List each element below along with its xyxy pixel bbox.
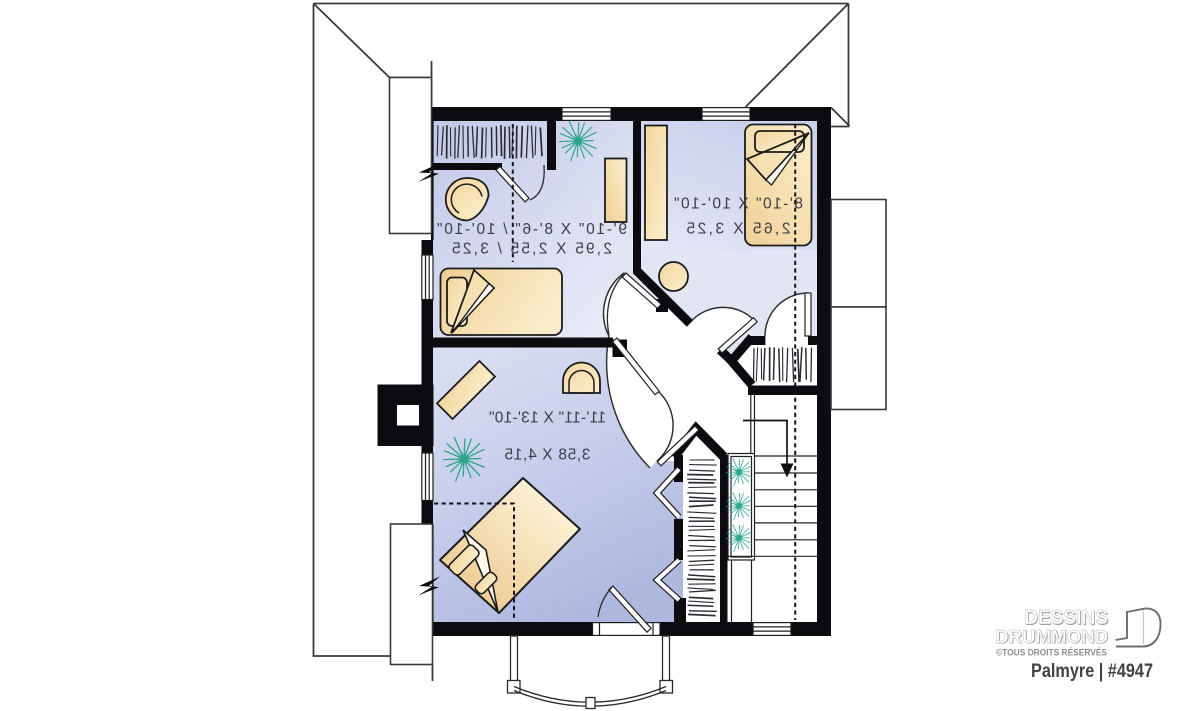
svg-text:11'-11" X 13'-10": 11'-11" X 13'-10" [489, 410, 606, 427]
svg-text:DRUMMOND: DRUMMOND [995, 627, 1108, 647]
svg-text:Palmyre | #4947: Palmyre | #4947 [1031, 661, 1153, 682]
svg-text:©TOUS DROITS RÉSERVÉS: ©TOUS DROITS RÉSERVÉS [996, 648, 1107, 658]
svg-text:8'-10" X 10'-10": 8'-10" X 10'-10" [674, 196, 803, 213]
svg-text:9'-10" X 8'-6" / 10'-10": 9'-10" X 8'-6" / 10'-10" [437, 221, 627, 238]
svg-text:DESSINS: DESSINS [1024, 606, 1108, 629]
svg-text:3,58 X 4,15: 3,58 X 4,15 [505, 447, 591, 464]
